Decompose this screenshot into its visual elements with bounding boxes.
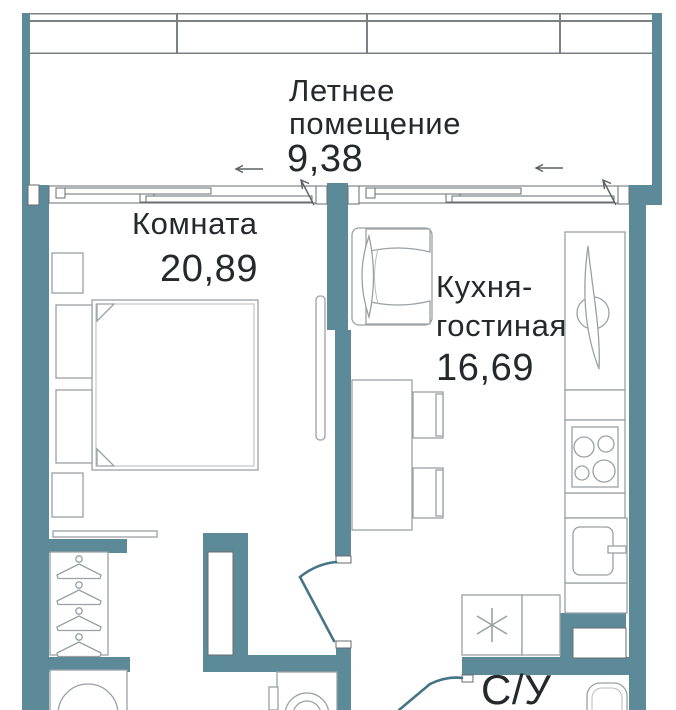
bedroom-door-swing-arc xyxy=(300,562,336,577)
nightstand-top xyxy=(52,253,83,293)
shaft-hall-inset xyxy=(208,552,233,655)
wall-left xyxy=(22,185,49,710)
bathroom-door xyxy=(399,678,462,710)
wardrobe xyxy=(50,552,108,657)
counter-segment xyxy=(565,493,625,518)
washing-machine-hall xyxy=(269,672,337,710)
shelf xyxy=(53,531,157,537)
jamb-center-left xyxy=(316,186,327,204)
nightstand-bottom xyxy=(52,473,83,517)
shaft-hall-top xyxy=(203,533,248,552)
tall-cabinet xyxy=(565,232,625,390)
counter-box xyxy=(522,595,560,655)
balcony-label-line1: Летнее xyxy=(289,74,461,107)
burner xyxy=(575,466,589,480)
headboard-cushion-2 xyxy=(56,390,92,463)
bedroom-door-leaf xyxy=(300,577,334,641)
bedroom-door xyxy=(300,562,336,641)
wall-balcony-left xyxy=(22,13,30,188)
slide-arrow-right-icon xyxy=(536,165,563,172)
wall-balcony-right xyxy=(652,13,662,190)
window-right xyxy=(358,180,619,205)
floor-plan: Летнее помещение 9,38 Комната 20,89 Кухн… xyxy=(0,0,676,710)
wall-center-upper xyxy=(327,183,348,330)
kitchen-label: Кухня- гостиная xyxy=(436,268,567,346)
tv-panel xyxy=(316,296,325,440)
wall-right xyxy=(629,203,646,710)
counter-segment xyxy=(565,583,627,613)
burner xyxy=(574,437,594,457)
door-stops xyxy=(336,556,473,682)
burner xyxy=(598,436,614,452)
window-left-sash-bottom xyxy=(146,196,312,202)
dining-table xyxy=(352,380,412,530)
sink xyxy=(565,518,627,583)
faucet-icon xyxy=(608,546,626,553)
chair-backrest xyxy=(436,470,443,516)
window-right-sash-bottom xyxy=(452,196,614,202)
water-heater xyxy=(462,595,522,655)
jamb-far-right xyxy=(618,186,629,204)
window-right-latch xyxy=(366,188,375,198)
window-left xyxy=(49,180,317,205)
wall-niche-top xyxy=(560,613,626,628)
bed-frame xyxy=(92,300,258,470)
wall-closet-top xyxy=(43,539,127,553)
chair-backrest xyxy=(436,394,443,436)
window-right-sash-top xyxy=(366,188,521,194)
wall-hall-bottom xyxy=(203,655,348,672)
shaft-hall-left xyxy=(203,552,208,655)
sink-bowl xyxy=(573,527,613,575)
headboard-cushion-1 xyxy=(56,305,92,378)
balcony-glazing xyxy=(30,14,652,54)
toilet xyxy=(587,683,627,710)
bathroom-label: С/У xyxy=(481,667,551,710)
kitchen-label-line2: гостиная xyxy=(436,307,567,346)
wall-pier-right xyxy=(629,185,662,205)
chair-top xyxy=(413,392,443,438)
armchair-armrest-bottom xyxy=(366,301,430,324)
burner xyxy=(593,460,615,482)
kitchen-area: 16,69 xyxy=(436,348,534,389)
doorstop-bedroom-bottom xyxy=(336,641,351,648)
bathroom-door-leaf xyxy=(399,684,430,710)
stove xyxy=(565,420,625,493)
doorstop-bedroom-top xyxy=(336,556,351,563)
bedroom-label: Комната xyxy=(132,207,258,240)
toilet-outer xyxy=(587,683,627,710)
jamb-far-left xyxy=(28,185,39,205)
armchair xyxy=(352,228,432,325)
window-left-latch xyxy=(56,188,65,198)
window-left-sash-top xyxy=(56,188,211,194)
bathroom-door-swing-arc xyxy=(430,678,462,684)
wall-center-mid xyxy=(335,330,351,556)
bed xyxy=(92,300,258,470)
balcony-area: 9,38 xyxy=(287,139,363,180)
doorstop-bathroom xyxy=(462,675,473,682)
balcony-label: Летнее помещение xyxy=(289,74,461,141)
niche-inset xyxy=(573,628,626,658)
slide-arrow-left-icon xyxy=(236,166,263,173)
bedroom-area: 20,89 xyxy=(160,249,258,290)
counter-segment xyxy=(565,390,625,420)
washing-machine-closet xyxy=(50,670,127,710)
shaft-hall-right xyxy=(233,552,248,655)
jamb-center-right xyxy=(348,186,359,204)
washer-drawer xyxy=(269,687,278,710)
kitchen-label-line1: Кухня- xyxy=(436,268,567,307)
armchair-armrest-top xyxy=(366,229,430,252)
balcony-label-line2: помещение xyxy=(289,107,461,140)
headboard-cushions xyxy=(56,305,92,463)
wall-niche-left xyxy=(560,628,573,674)
chair-bottom xyxy=(413,468,443,518)
